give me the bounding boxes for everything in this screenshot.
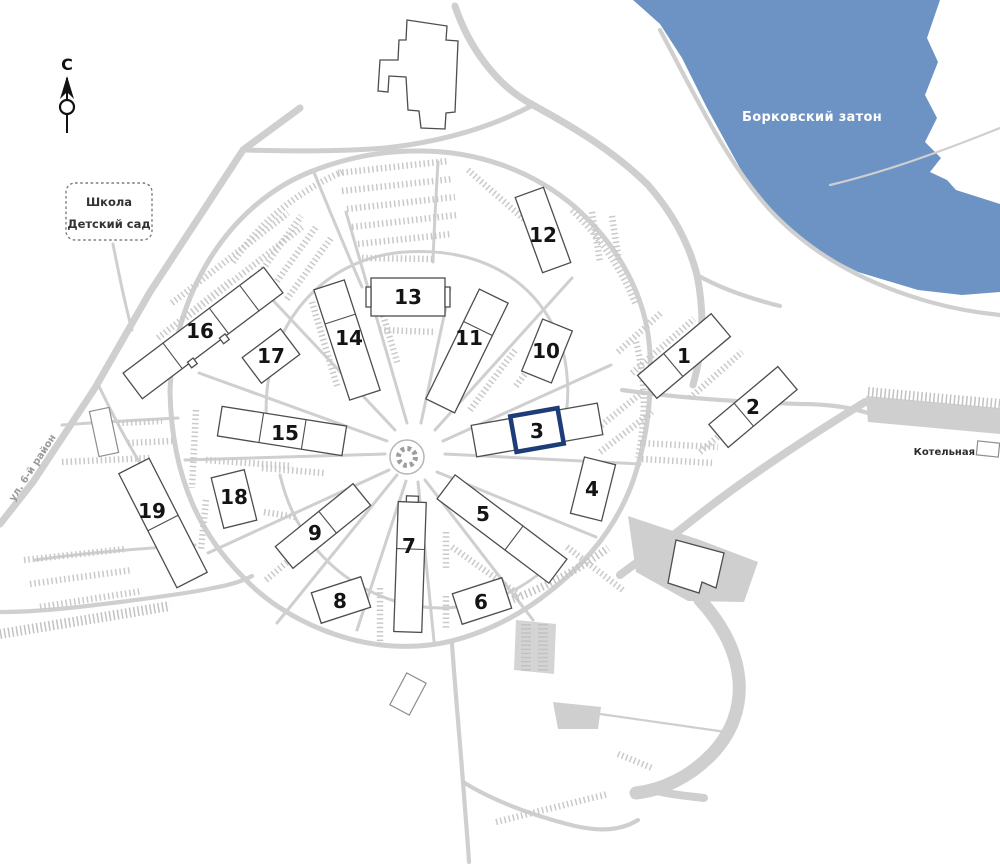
- building-1-label: 1: [677, 344, 691, 368]
- water-label: Борковский затон: [742, 110, 882, 125]
- building-15-label: 15: [271, 421, 299, 445]
- boiler-building: [976, 441, 999, 457]
- compass-north-icon: С: [60, 55, 74, 133]
- compass-north-label: С: [61, 55, 73, 74]
- central-plaza-icon: [390, 440, 424, 474]
- street-label: ул. 6-й район: [7, 433, 58, 504]
- building-4-label: 4: [585, 477, 599, 501]
- building-12-label: 12: [529, 223, 557, 247]
- utility-building-south: [390, 673, 426, 715]
- existing-building-north: [378, 20, 458, 129]
- building-7-label: 7: [402, 534, 416, 558]
- paved-lot-south: [553, 702, 601, 729]
- building-5-label: 5: [476, 502, 490, 526]
- school-kindergarten-box: Школа Детский сад: [66, 183, 152, 240]
- building-19-label: 19: [138, 499, 166, 523]
- building-18-label: 18: [220, 485, 248, 509]
- building-14-label: 14: [335, 326, 363, 350]
- building-5[interactable]: [437, 475, 567, 583]
- parking-comb: [514, 620, 556, 674]
- site-plan-page: Борковский затон: [0, 0, 1000, 864]
- building-7[interactable]: [394, 496, 427, 633]
- boiler-label: Котельная: [914, 447, 975, 458]
- building-8-label: 8: [333, 589, 347, 613]
- kindergarten-label: Детский сад: [67, 217, 150, 231]
- building-6-label: 6: [474, 590, 488, 614]
- building-10-label: 10: [532, 339, 560, 363]
- building-13-label: 13: [394, 285, 422, 309]
- building-17-label: 17: [257, 344, 285, 368]
- building-9-label: 9: [308, 521, 322, 545]
- school-label: Школа: [86, 195, 132, 209]
- paved-areas: [514, 396, 1000, 729]
- building-2-label: 2: [746, 395, 760, 419]
- building-11-label: 11: [455, 326, 483, 350]
- site-plan-map: Борковский затон: [0, 0, 1000, 864]
- building-16-label: 16: [186, 319, 214, 343]
- building-19[interactable]: [119, 458, 207, 587]
- building-3-label: 3: [530, 419, 544, 443]
